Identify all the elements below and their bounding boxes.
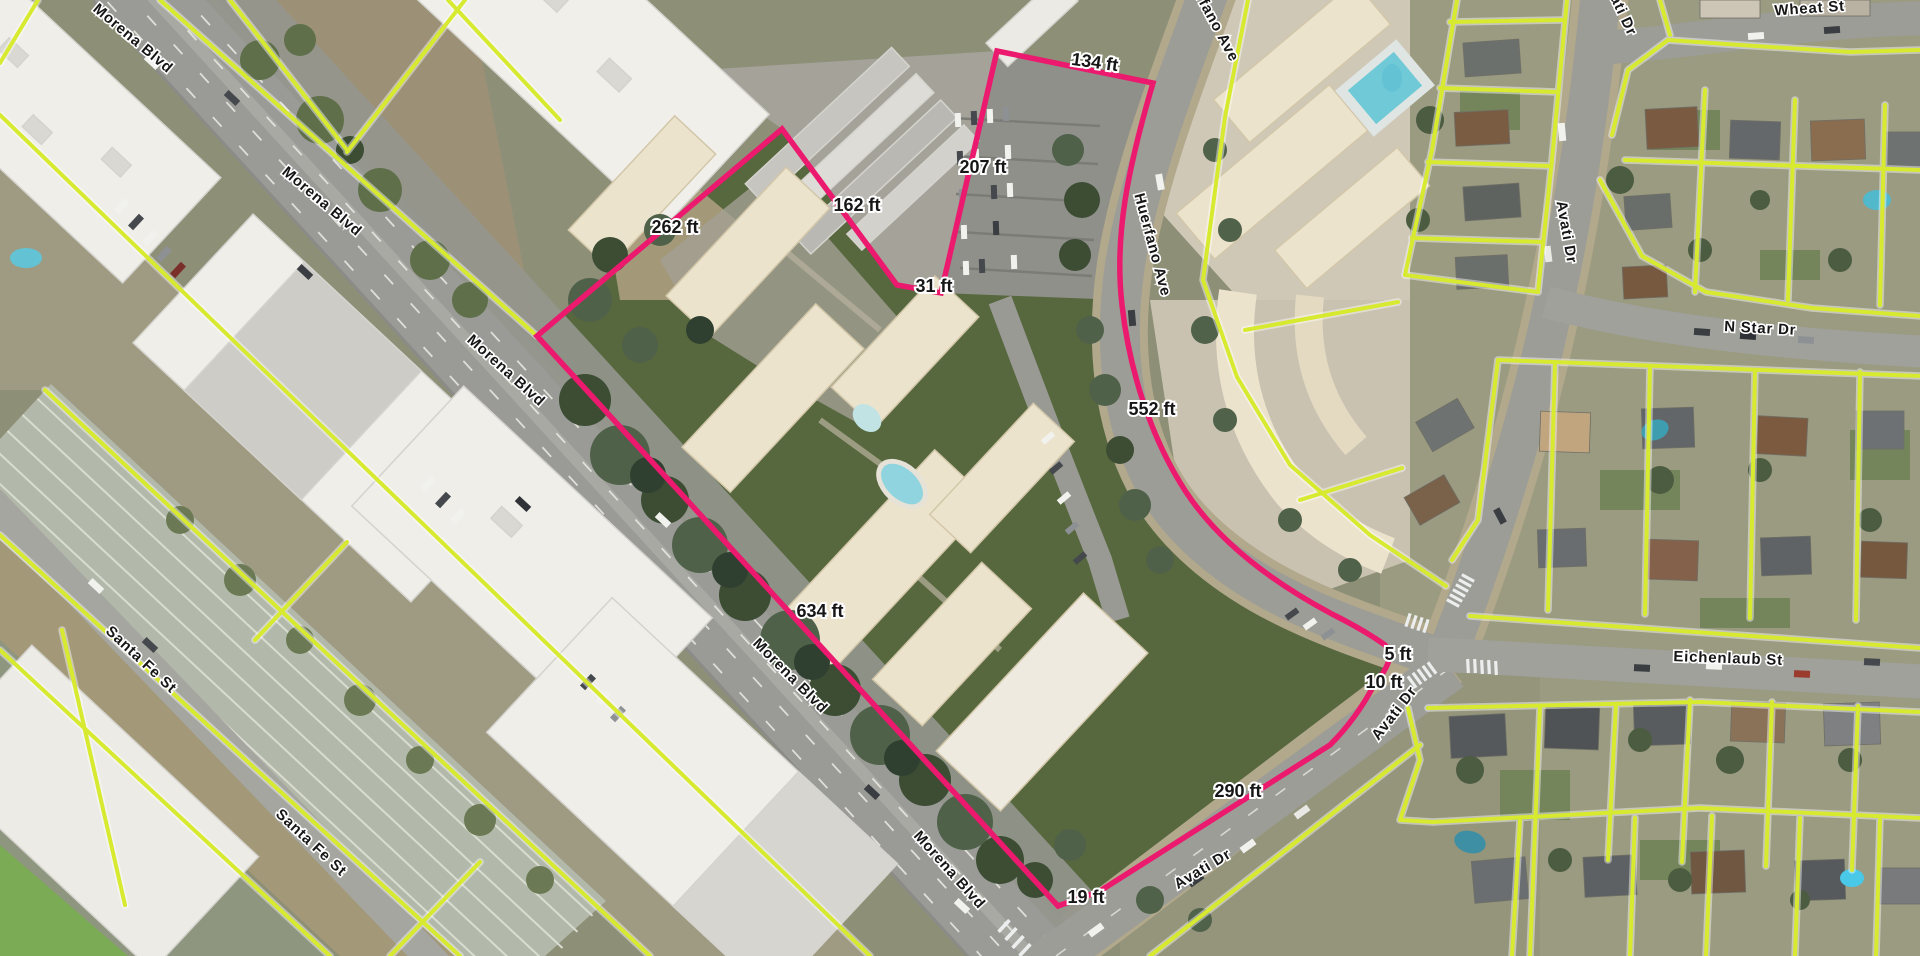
measurement-label: 31 ft <box>915 276 952 296</box>
measurement-label: 634 ft <box>796 601 843 621</box>
measurement-label: 5 ft <box>1385 644 1412 664</box>
measurement-label: 10 ft <box>1365 672 1402 692</box>
measurement-label: 552 ft <box>1128 399 1175 419</box>
measurement-label: 290 ft <box>1214 781 1261 801</box>
measurement-label: 19 ft <box>1067 887 1104 907</box>
measurement-label: 162 ft <box>833 195 880 215</box>
satellite-map[interactable]: Morena BlvdMorena BlvdMorena BlvdMorena … <box>0 0 1920 956</box>
measurement-label: 262 ft <box>651 217 698 237</box>
measurement-label: 207 ft <box>959 157 1006 177</box>
